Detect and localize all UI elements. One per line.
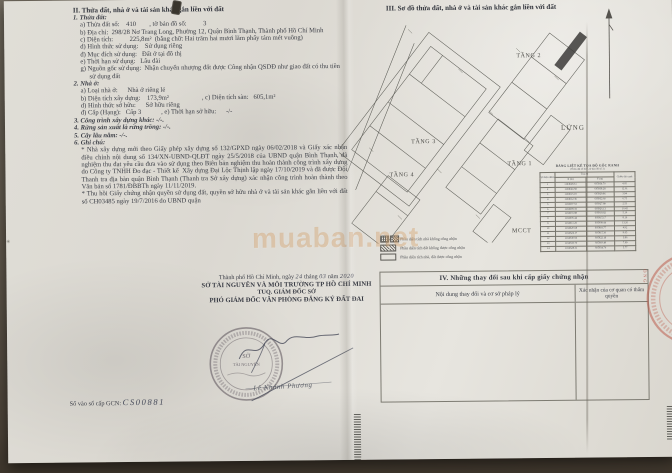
photographed-land-certificate: { "document": { "section2": { "heading":… bbox=[0, 0, 672, 473]
book-number-label: Số vào sổ cấp GCN: bbox=[70, 400, 123, 408]
edge-stamp-letters: ÒNG bbox=[642, 269, 647, 284]
date-month-handwritten: 03 bbox=[319, 274, 326, 280]
handwritten-signature bbox=[221, 320, 362, 407]
barcode-mark bbox=[354, 414, 361, 460]
signature-block: Thành phố Hồ Chí Minh, ngày 24 tháng 03 … bbox=[164, 273, 408, 305]
site-watermark: muaban.net bbox=[252, 221, 419, 255]
date-prefix: Thành phố Hồ Chí Minh, ngày bbox=[219, 274, 294, 281]
legend-label: Phần diện tích nhà, đất được công nhận bbox=[400, 254, 461, 259]
changes-empty-cell bbox=[381, 303, 577, 402]
signer-title-line: PHÓ GIÁM ĐỐC VĂN PHÒNG ĐĂNG KÝ ĐẤT ĐAI bbox=[165, 296, 409, 306]
barcode-mark bbox=[667, 406, 672, 441]
section-4-table: IV. Những thay đổi sau khi cấp giấy chứn… bbox=[379, 269, 649, 403]
edge-red-stamp bbox=[636, 247, 672, 353]
date-thang: tháng bbox=[304, 274, 318, 280]
date-day-handwritten: 24 bbox=[295, 274, 302, 280]
floor-label-tang4: TẦNG 4 bbox=[389, 172, 414, 178]
book-number-value-handwritten: CS00881 bbox=[123, 397, 165, 407]
legend-swatch-empty-icon bbox=[380, 253, 396, 260]
col-point-header: Số hiệu điểm bbox=[540, 173, 555, 183]
col-length-header: Chiều dài cạnh bbox=[614, 172, 635, 182]
floor-label-lung: LỬNG bbox=[561, 124, 585, 132]
note-paragraph: * Thu hồi Giấy chứng nhận quyền sử dụng … bbox=[75, 188, 348, 205]
floor-label-tang2: TẦNG 2 bbox=[516, 53, 541, 59]
floor-label-tang1: TẦNG 1 bbox=[507, 161, 532, 167]
coordinate-rows: 11194628.31605934.704.0521194624.5860593… bbox=[540, 182, 636, 252]
section-2-block: II. Thửa đất, nhà ở và tài sản khác gắn … bbox=[73, 4, 348, 206]
left-edge-mark: ✳ bbox=[6, 239, 10, 245]
date-year-handwritten: 2020 bbox=[340, 274, 354, 280]
coordinate-row: 141194628.31605934.705.77 bbox=[541, 245, 636, 251]
changes-column-header: Nội dung thay đổi và cơ sở pháp lý bbox=[381, 285, 576, 304]
date-nam: năm bbox=[328, 274, 339, 280]
note-paragraph: * Nhà xây dựng mới theo Giấy phép xây dự… bbox=[74, 144, 347, 191]
coordinate-table: BẢNG LIỆT KÊ TỌA ĐỘ GỐC RANH (Thửa đất s… bbox=[539, 163, 636, 252]
floor-label-tang3: TẦNG 3 bbox=[411, 139, 436, 145]
certificate-book-number: Số vào sổ cấp GCN: CS00881 bbox=[70, 397, 165, 408]
certificate-paper: II. Thửa đất, nhà ở và tài sản khác gắn … bbox=[4, 0, 672, 463]
north-arrow-icon bbox=[602, 8, 617, 102]
